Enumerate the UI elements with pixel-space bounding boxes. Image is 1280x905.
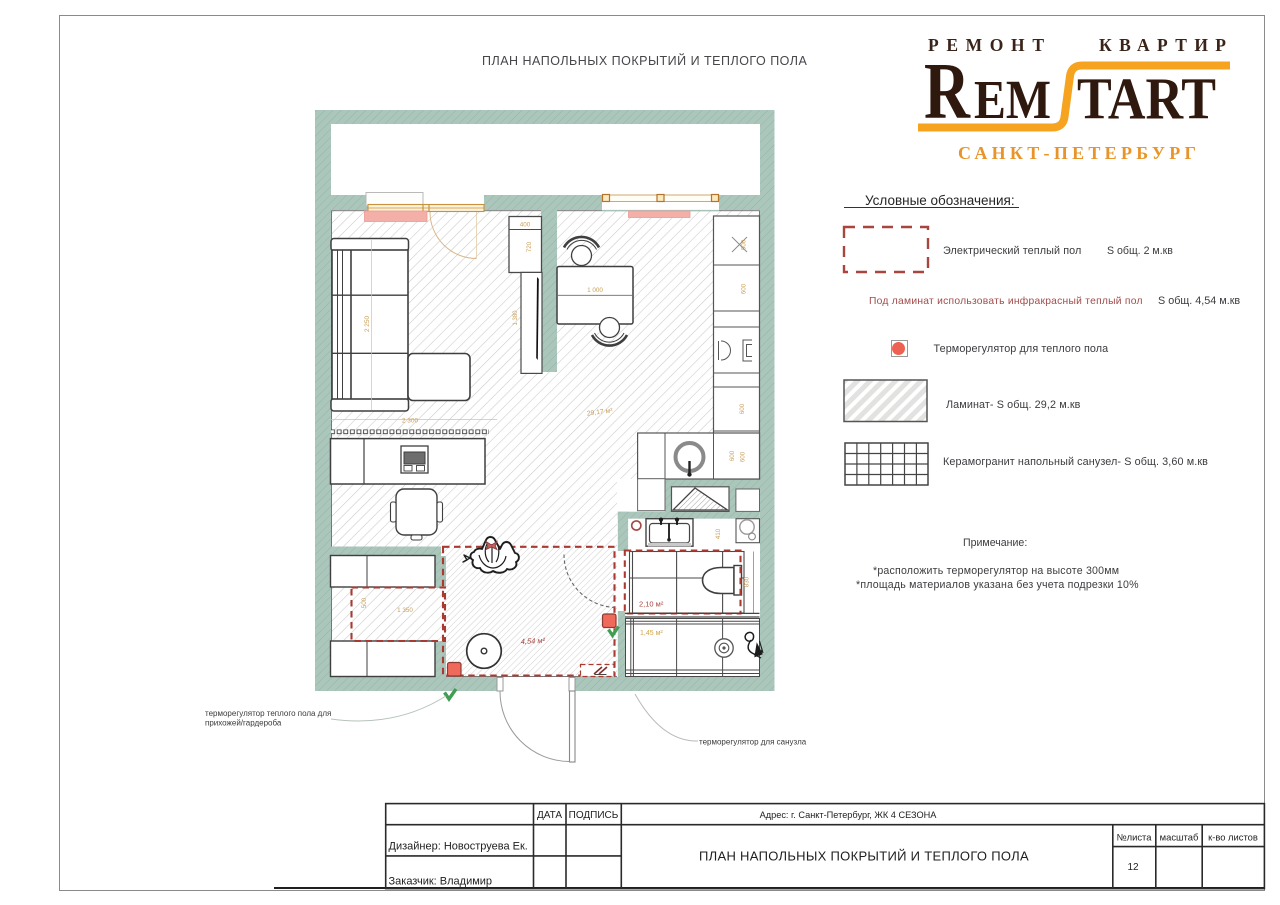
svg-text:ПЛАН НАПОЛЬНЫХ ПОКРЫТИЙ И ТЕПЛ: ПЛАН НАПОЛЬНЫХ ПОКРЫТИЙ И ТЕПЛОГО ПОЛА — [699, 849, 1029, 864]
svg-text:Адрес: г. Санкт-Петербург, ЖК: Адрес: г. Санкт-Петербург, ЖК 4 СЕЗОНА — [760, 810, 938, 820]
svg-text:410: 410 — [715, 528, 722, 539]
svg-text:масштаб: масштаб — [1160, 832, 1199, 843]
svg-text:600: 600 — [739, 403, 746, 414]
svg-text:к-во листов: к-во листов — [1208, 832, 1258, 843]
svg-text:терморегулятор теплого пола дл: терморегулятор теплого пола для — [205, 709, 331, 718]
svg-text:12: 12 — [1127, 862, 1139, 873]
svg-text:TART: TART — [1077, 66, 1216, 132]
svg-text:1 350: 1 350 — [397, 607, 413, 614]
svg-text:1 380: 1 380 — [513, 310, 519, 326]
svg-text:600: 600 — [729, 450, 736, 461]
svg-text:ПОДПИСЬ: ПОДПИСЬ — [569, 810, 619, 821]
svg-text:720: 720 — [526, 241, 533, 252]
svg-text:2 300: 2 300 — [402, 418, 419, 425]
svg-text:500: 500 — [361, 597, 368, 608]
svg-text:терморегулятор для санузла: терморегулятор для санузла — [699, 738, 807, 747]
svg-text:ДАТА: ДАТА — [537, 810, 562, 821]
svg-text:600: 600 — [741, 239, 748, 250]
svg-text:2 250: 2 250 — [364, 315, 371, 332]
svg-text:1,45 м²: 1,45 м² — [640, 630, 663, 637]
svg-text:600: 600 — [740, 451, 747, 462]
svg-text:Дизайнер: Новоструева Ек.: Дизайнер: Новоструева Ек. — [389, 841, 528, 853]
svg-text:400: 400 — [520, 222, 531, 229]
svg-text:4,54 м²: 4,54 м² — [520, 636, 545, 646]
svg-text:Заказчик: Владимир: Заказчик: Владимир — [389, 876, 493, 888]
svg-text:прихожей/гардероба: прихожей/гардероба — [205, 719, 282, 728]
svg-text:600: 600 — [741, 283, 748, 294]
svg-text:830: 830 — [744, 576, 751, 587]
svg-text:№листа: №листа — [1117, 832, 1153, 843]
svg-text:R: R — [924, 48, 971, 136]
svg-text:EM: EM — [974, 69, 1051, 130]
svg-text:КВАРТИР: КВАРТИР — [1099, 35, 1226, 55]
svg-text:САНКТ-ПЕТЕРБУРГ: САНКТ-ПЕТЕРБУРГ — [958, 143, 1196, 163]
svg-text:2,10 м²: 2,10 м² — [639, 600, 664, 609]
svg-text:1 000: 1 000 — [587, 287, 603, 294]
